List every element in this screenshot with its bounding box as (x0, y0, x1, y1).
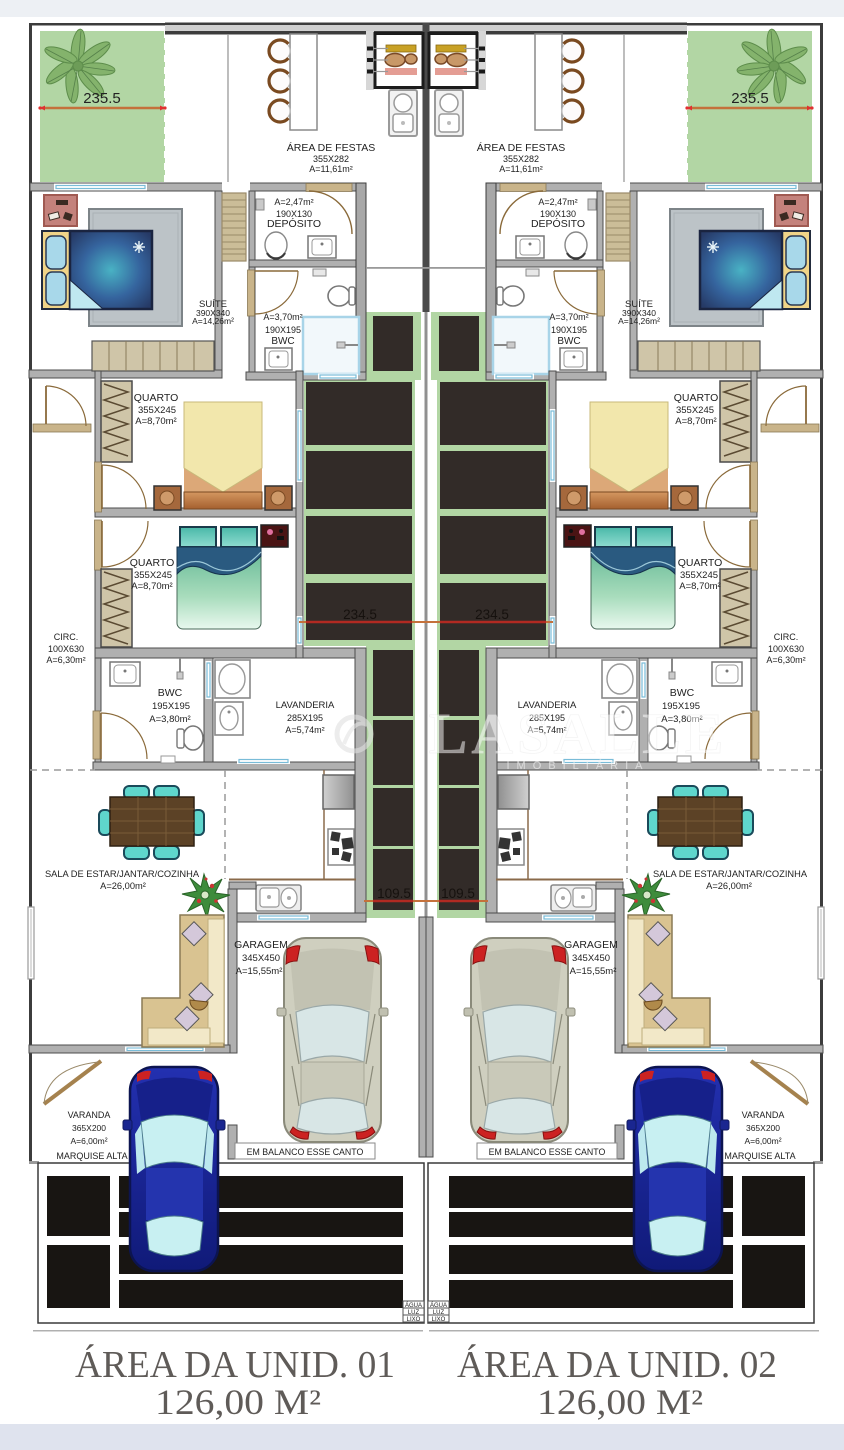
svg-text:A=6,30m²: A=6,30m² (46, 655, 85, 665)
svg-text:195X195: 195X195 (152, 701, 190, 712)
svg-text:MARQUISE ALTA: MARQUISE ALTA (724, 1151, 795, 1161)
svg-text:234.5: 234.5 (475, 607, 509, 622)
svg-text:GARAGEM: GARAGEM (234, 939, 288, 951)
svg-text:DEPÓSITO: DEPÓSITO (531, 217, 585, 230)
svg-text:BWC: BWC (158, 687, 183, 699)
svg-text:LIXO: LIXO (407, 1317, 421, 1323)
svg-text:CIRC.: CIRC. (774, 632, 799, 642)
svg-text:235.5: 235.5 (731, 90, 769, 107)
svg-text:SALA DE ESTAR/JANTAR/COZINHA: SALA DE ESTAR/JANTAR/COZINHA (45, 869, 200, 879)
svg-text:A=15,55m²: A=15,55m² (236, 966, 283, 977)
svg-text:A=8,70m²: A=8,70m² (135, 416, 176, 427)
svg-text:109.5: 109.5 (377, 886, 411, 901)
svg-text:ÁGUA: ÁGUA (430, 1302, 447, 1309)
svg-text:A=26,00m²: A=26,00m² (100, 881, 146, 891)
svg-text:109.5: 109.5 (441, 886, 475, 901)
svg-text:BWC: BWC (271, 336, 294, 347)
svg-text:365X200: 365X200 (72, 1123, 106, 1133)
svg-text:355X282: 355X282 (503, 154, 539, 164)
svg-text:A=3,80m²: A=3,80m² (149, 714, 190, 725)
svg-text:ÁREA DE FESTAS: ÁREA DE FESTAS (477, 141, 566, 154)
svg-text:ÁREA DA UNID. 02: ÁREA DA UNID. 02 (457, 1344, 777, 1386)
svg-text:ÁREA DE FESTAS: ÁREA DE FESTAS (287, 141, 376, 154)
svg-text:190X195: 190X195 (551, 325, 587, 335)
svg-text:QUARTO: QUARTO (134, 392, 179, 404)
svg-text:ÁGUA: ÁGUA (405, 1302, 422, 1309)
svg-text:CIRC.: CIRC. (54, 632, 79, 642)
svg-text:LUZ: LUZ (433, 1310, 445, 1316)
svg-text:A=6,00m²: A=6,00m² (70, 1136, 107, 1146)
svg-text:GARAGEM: GARAGEM (564, 939, 618, 951)
svg-text:BWC: BWC (557, 336, 580, 347)
svg-text:A=6,30m²: A=6,30m² (766, 655, 805, 665)
svg-text:345X450: 345X450 (242, 953, 280, 964)
svg-text:355X245: 355X245 (138, 405, 176, 416)
svg-text:EM BALANCO ESSE CANTO: EM BALANCO ESSE CANTO (247, 1147, 364, 1157)
svg-text:A=8,70m²: A=8,70m² (675, 416, 716, 427)
svg-text:DEPÓSITO: DEPÓSITO (267, 217, 321, 230)
svg-text:ÁREA DA UNID. 01: ÁREA DA UNID. 01 (75, 1344, 395, 1386)
svg-text:A=3,70m²: A=3,70m² (263, 312, 302, 322)
svg-text:VARANDA: VARANDA (68, 1110, 111, 1120)
svg-text:A=14,26m²: A=14,26m² (618, 316, 660, 326)
svg-text:MARQUISE ALTA: MARQUISE ALTA (56, 1151, 127, 1161)
svg-text:126,00 M²: 126,00 M² (537, 1382, 703, 1422)
svg-text:LUZ: LUZ (408, 1310, 420, 1316)
svg-text:A=26,00m²: A=26,00m² (706, 881, 752, 891)
svg-text:BWC: BWC (670, 687, 695, 699)
svg-text:A=8,70m²: A=8,70m² (131, 581, 172, 592)
svg-text:A=11,61m²: A=11,61m² (309, 164, 353, 174)
svg-text:235.5: 235.5 (83, 90, 121, 107)
svg-text:285X195: 285X195 (287, 713, 323, 723)
svg-text:A=8,70m²: A=8,70m² (679, 581, 720, 592)
svg-text:190X195: 190X195 (265, 325, 301, 335)
svg-text:A=2,47m²: A=2,47m² (538, 197, 577, 207)
svg-text:126,00 M²: 126,00 M² (155, 1382, 321, 1422)
svg-text:QUARTO: QUARTO (130, 557, 175, 569)
svg-text:355X245: 355X245 (680, 570, 718, 581)
svg-text:355X282: 355X282 (313, 154, 349, 164)
svg-text:SALA DE ESTAR/JANTAR/COZINHA: SALA DE ESTAR/JANTAR/COZINHA (653, 869, 808, 879)
svg-text:VARANDA: VARANDA (742, 1110, 785, 1120)
svg-text:A=15,55m²: A=15,55m² (570, 966, 617, 977)
svg-text:234.5: 234.5 (343, 607, 377, 622)
svg-text:A=11,61m²: A=11,61m² (499, 164, 543, 174)
svg-text:LIXO: LIXO (432, 1317, 446, 1323)
svg-text:EM BALANCO ESSE CANTO: EM BALANCO ESSE CANTO (489, 1147, 606, 1157)
svg-text:A=2,47m²: A=2,47m² (274, 197, 313, 207)
svg-text:QUARTO: QUARTO (674, 392, 719, 404)
svg-text:345X450: 345X450 (572, 953, 610, 964)
svg-text:365X200: 365X200 (746, 1123, 780, 1133)
svg-text:LASALLE: LASALLE (429, 701, 728, 766)
svg-text:100X630: 100X630 (768, 644, 804, 654)
svg-text:A=3,70m²: A=3,70m² (549, 312, 588, 322)
svg-text:QUARTO: QUARTO (678, 557, 723, 569)
svg-text:A=5,74m²: A=5,74m² (285, 725, 324, 735)
svg-text:355X245: 355X245 (676, 405, 714, 416)
svg-text:100X630: 100X630 (48, 644, 84, 654)
svg-text:355X245: 355X245 (134, 570, 172, 581)
svg-text:LAVANDERIA: LAVANDERIA (276, 700, 335, 711)
svg-text:IMOBILIÁRIA: IMOBILIÁRIA (506, 759, 649, 772)
svg-text:A=14,26m²: A=14,26m² (192, 316, 234, 326)
svg-text:A=6,00m²: A=6,00m² (744, 1136, 781, 1146)
